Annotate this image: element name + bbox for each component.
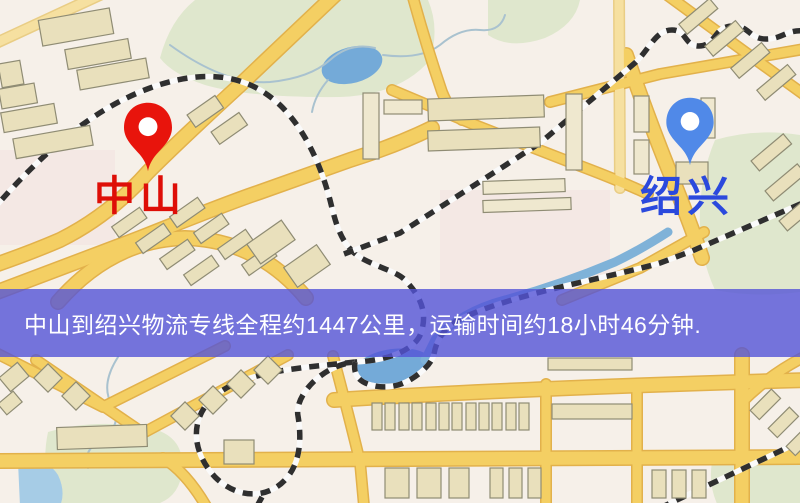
destination-label: 绍兴: [640, 176, 734, 218]
origin-marker[interactable]: [122, 101, 174, 173]
map-pin-icon: [122, 101, 174, 173]
map-canvas[interactable]: [0, 0, 800, 503]
route-info-text: 中山到绍兴物流专线全程约1447公里，运输时间约18小时46分钟.: [24, 306, 701, 340]
destination-marker[interactable]: [664, 96, 716, 167]
map-pin-icon: [664, 96, 716, 167]
map-view[interactable]: 中山 绍兴 中山到绍兴物流专线全程约1447公里，运输时间约18小时46分钟.: [0, 0, 800, 503]
origin-label: 中山: [94, 176, 186, 217]
route-info-banner: 中山到绍兴物流专线全程约1447公里，运输时间约18小时46分钟.: [0, 289, 800, 357]
